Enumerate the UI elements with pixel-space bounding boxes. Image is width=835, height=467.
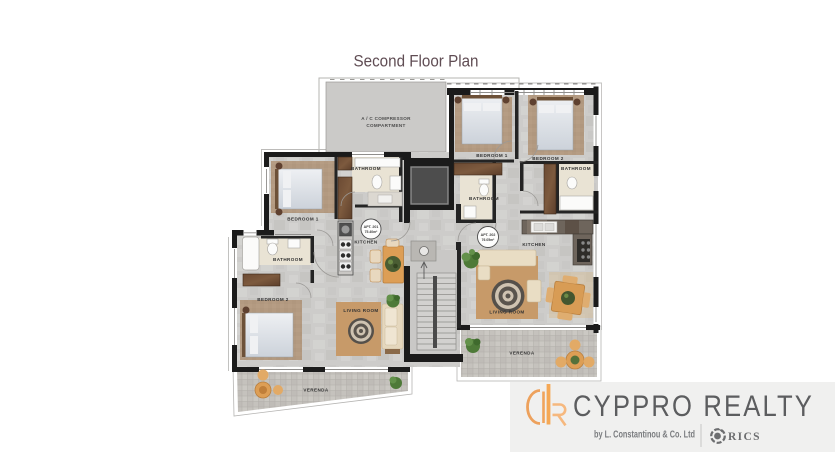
svg-text:KITCHEN: KITCHEN xyxy=(354,240,377,245)
svg-text:CYPPRO REALTY: CYPPRO REALTY xyxy=(573,390,814,423)
svg-text:RICS: RICS xyxy=(728,431,761,443)
svg-text:76.05m²: 76.05m² xyxy=(482,238,495,242)
svg-text:APT. 202: APT. 202 xyxy=(481,233,496,237)
svg-text:KITCHEN: KITCHEN xyxy=(522,242,545,247)
svg-text:A / C COMPRESSOR: A / C COMPRESSOR xyxy=(361,116,411,121)
svg-text:BATHROOM: BATHROOM xyxy=(351,166,381,171)
svg-text:APT. 201: APT. 201 xyxy=(364,225,379,229)
svg-text:LIVING ROOM: LIVING ROOM xyxy=(343,308,378,313)
svg-text:BEDROOM 2: BEDROOM 2 xyxy=(532,156,563,161)
svg-text:75.40m²: 75.40m² xyxy=(365,230,378,234)
svg-text:VERENDA: VERENDA xyxy=(509,351,535,356)
svg-text:by L. Constantinou & Co. Ltd: by L. Constantinou & Co. Ltd xyxy=(594,430,695,441)
svg-text:VERENDA: VERENDA xyxy=(303,388,329,393)
svg-text:BATHROOM: BATHROOM xyxy=(469,196,499,201)
svg-text:LIVING ROOM: LIVING ROOM xyxy=(489,310,524,315)
svg-text:BEDROOM 2: BEDROOM 2 xyxy=(257,297,288,302)
svg-text:BEDROOM 1: BEDROOM 1 xyxy=(287,217,318,222)
svg-text:COMPARTMENT: COMPARTMENT xyxy=(366,123,405,128)
svg-text:BEDROOM 1: BEDROOM 1 xyxy=(476,153,507,158)
svg-text:BATHROOM: BATHROOM xyxy=(273,257,303,262)
svg-text:BATHROOM: BATHROOM xyxy=(561,166,591,171)
svg-text:Second Floor Plan: Second Floor Plan xyxy=(354,52,479,71)
